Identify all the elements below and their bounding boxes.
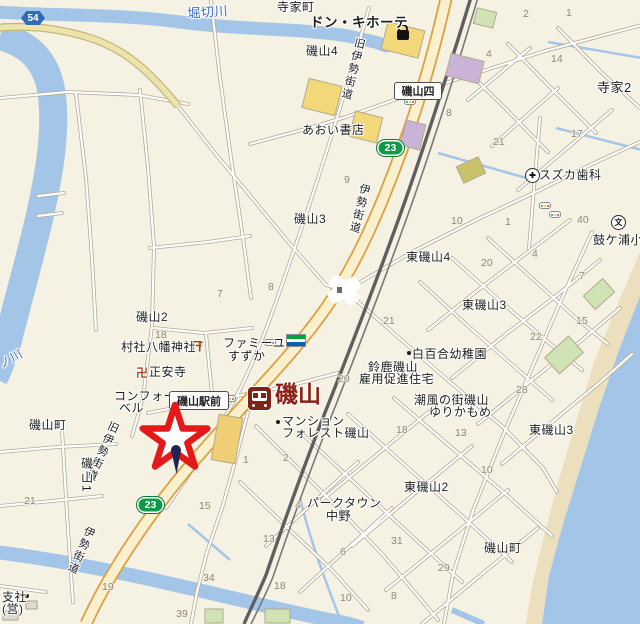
station-name: 磯山 <box>275 383 321 406</box>
map-base-layer <box>0 0 640 624</box>
map-canvas[interactable]: ✚文卍 寺家町ドン・キホーテ磯山4寺家2あおい書店磯山3スズカ歯科鼓ケ浦小東磯山… <box>0 0 640 624</box>
train-station-icon <box>248 387 271 410</box>
station-isoyama[interactable]: 磯山 <box>248 383 321 410</box>
